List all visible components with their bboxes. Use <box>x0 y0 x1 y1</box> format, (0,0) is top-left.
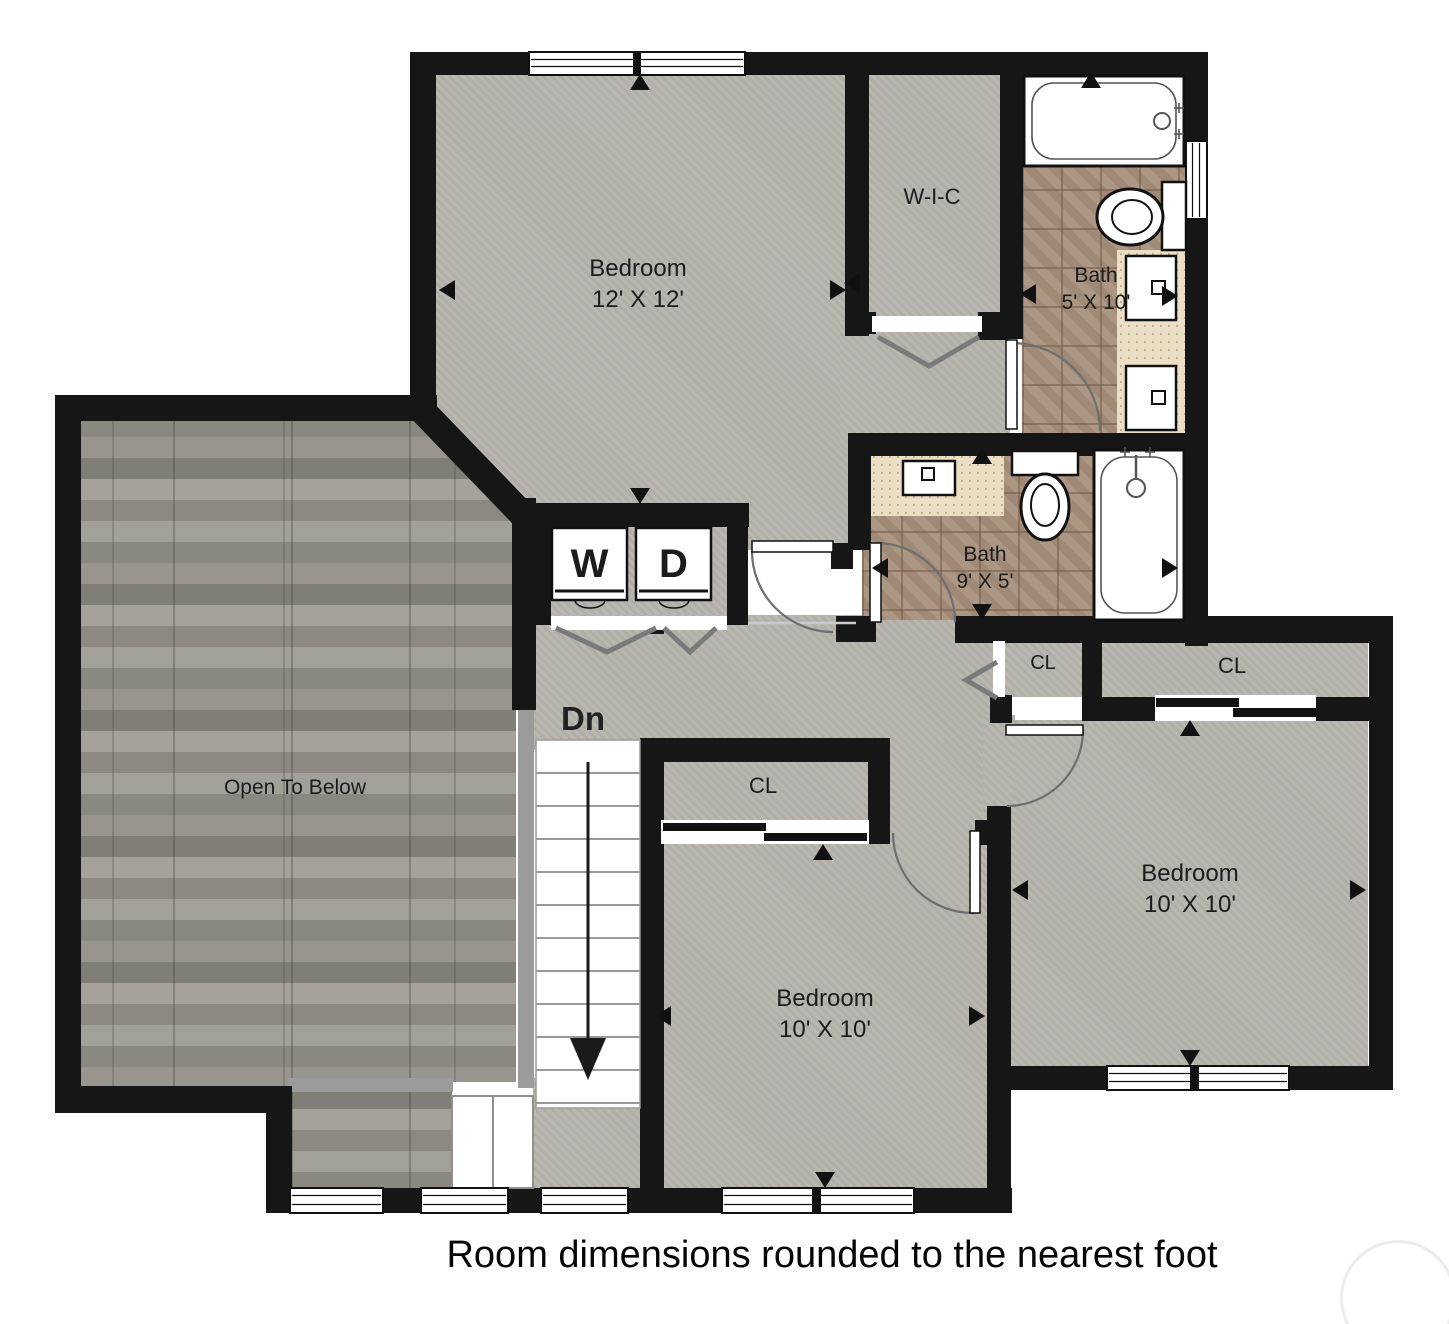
room-name: Bedroom <box>725 983 925 1014</box>
washer-label: W <box>552 535 627 593</box>
closet-text: CL <box>1182 652 1282 681</box>
room-label-bedroom-main: Bedroom 12' X 12' <box>528 253 748 315</box>
closet-text: CL <box>713 772 813 801</box>
room-label-bedroom-right: Bedroom 10' X 10' <box>1090 858 1290 920</box>
bathtub <box>1024 76 1184 166</box>
understair-cabinet <box>452 1096 533 1188</box>
door-bath-upper <box>1006 340 1100 431</box>
bifold-door <box>966 641 1005 698</box>
bifold-door <box>872 316 982 366</box>
room-dims: 5' X 10' <box>1030 289 1162 316</box>
sliding-door <box>661 820 869 844</box>
tub-faucet <box>1154 113 1170 129</box>
room-name: Bath <box>915 541 1055 568</box>
dryer-label: D <box>636 535 711 593</box>
room-label-bath-hall: Bath 9' X 5' <box>915 541 1055 596</box>
window <box>1186 141 1207 219</box>
window <box>722 1188 914 1213</box>
washer-letter: W <box>552 535 627 593</box>
window <box>529 52 745 75</box>
footer-note: Room dimensions rounded to the nearest f… <box>215 1234 1449 1277</box>
room-dims: 10' X 10' <box>1090 889 1290 920</box>
closet-label-right: CL <box>1182 652 1282 681</box>
vanity-sink <box>1126 366 1176 430</box>
bifold-door <box>551 616 727 652</box>
room-name: Bedroom <box>528 253 748 284</box>
room-label-bedroom-middle: Bedroom 10' X 10' <box>725 983 925 1045</box>
room-dims: 10' X 10' <box>725 1014 925 1045</box>
toilet <box>1097 182 1186 250</box>
room-name: Bath <box>1030 262 1162 289</box>
window <box>541 1188 628 1213</box>
window <box>290 1188 383 1213</box>
staircase <box>536 740 640 1108</box>
room-name: Bedroom <box>1090 858 1290 889</box>
tub-faucet <box>1127 479 1145 497</box>
closet-label-hall: CL <box>1013 650 1073 676</box>
bathtub <box>1094 447 1184 620</box>
vanity-sink <box>903 461 955 495</box>
room-label-bath-upper: Bath 5' X 10' <box>1030 262 1162 317</box>
toilet <box>1012 451 1078 540</box>
room-label-wic: W-I-C <box>862 183 1002 212</box>
stairs-dn-text: Dn <box>538 698 628 741</box>
room-name: Open To Below <box>160 774 430 801</box>
door-bedroom-middle <box>893 831 980 913</box>
floor-plan: Bedroom 12' X 12' W-I-C Bath 5' X 10' Ba… <box>0 0 1449 1324</box>
room-label-open-to-below: Open To Below <box>160 774 430 801</box>
closet-label-middle: CL <box>713 772 813 801</box>
door-bedroom-main <box>752 541 833 632</box>
stairs-dn-label: Dn <box>538 698 628 741</box>
sliding-door <box>1155 695 1316 721</box>
room-dims: 9' X 5' <box>915 568 1055 595</box>
wall-diagonal <box>416 404 522 514</box>
dryer-letter: D <box>636 535 711 593</box>
room-dims: 12' X 12' <box>528 284 748 315</box>
window <box>1107 1066 1289 1090</box>
window <box>421 1188 508 1213</box>
closet-text: CL <box>1013 650 1073 676</box>
room-name: W-I-C <box>862 183 1002 212</box>
door-bedroom-right <box>1006 725 1083 806</box>
